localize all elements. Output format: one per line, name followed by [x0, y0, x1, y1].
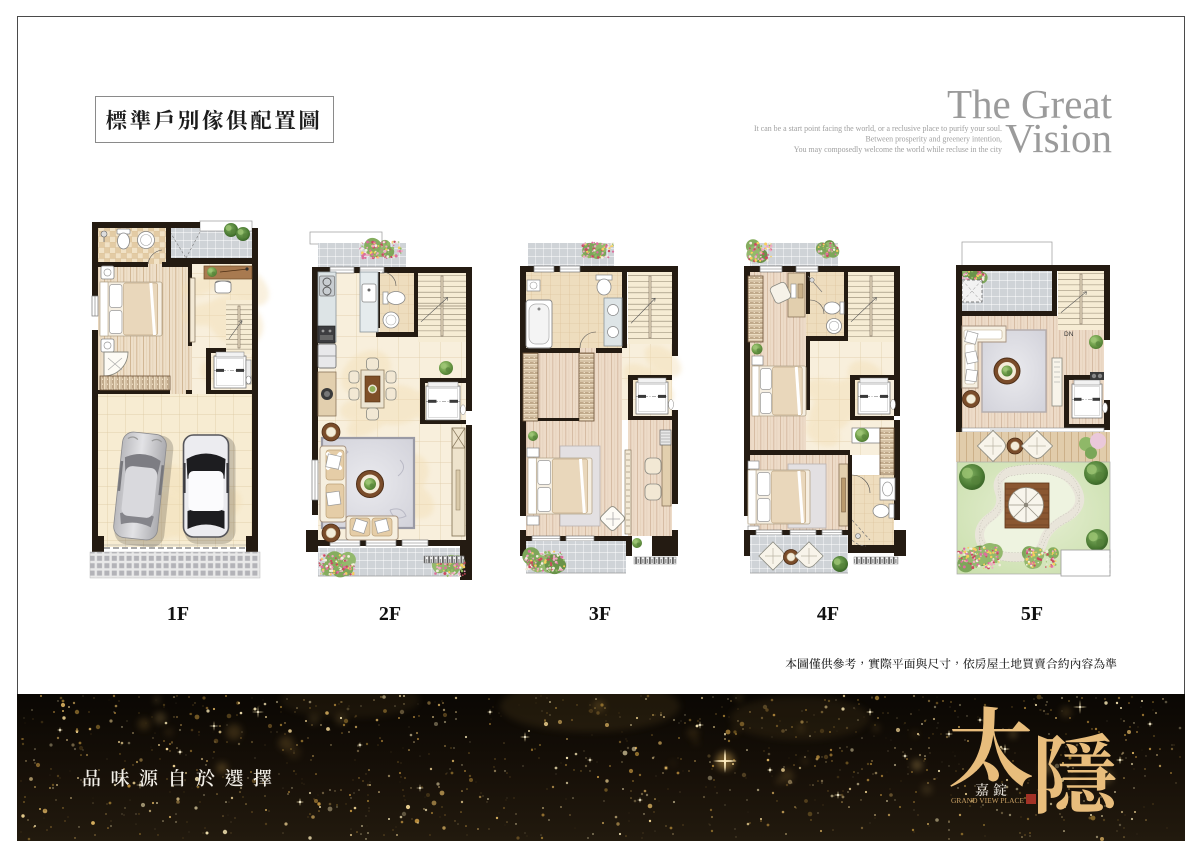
svg-text:1F: 1F [167, 603, 189, 625]
svg-text:It can be a start point facing: It can be a start point facing the world… [754, 124, 1002, 133]
svg-text:5F: 5F [1021, 603, 1043, 625]
svg-text:2F: 2F [379, 603, 401, 625]
svg-text:3F: 3F [589, 603, 611, 625]
svg-text:DN: DN [1064, 331, 1074, 338]
svg-text:4F: 4F [817, 603, 839, 625]
svg-text:You may composedly welcome the: You may composedly welcome the world whi… [794, 145, 1002, 154]
svg-text:GRAND VIEW PLACE: GRAND VIEW PLACE [951, 797, 1025, 805]
svg-text:Vision: Vision [1005, 115, 1112, 161]
svg-text:Between prosperity and greener: Between prosperity and greenery intentio… [865, 135, 1002, 144]
